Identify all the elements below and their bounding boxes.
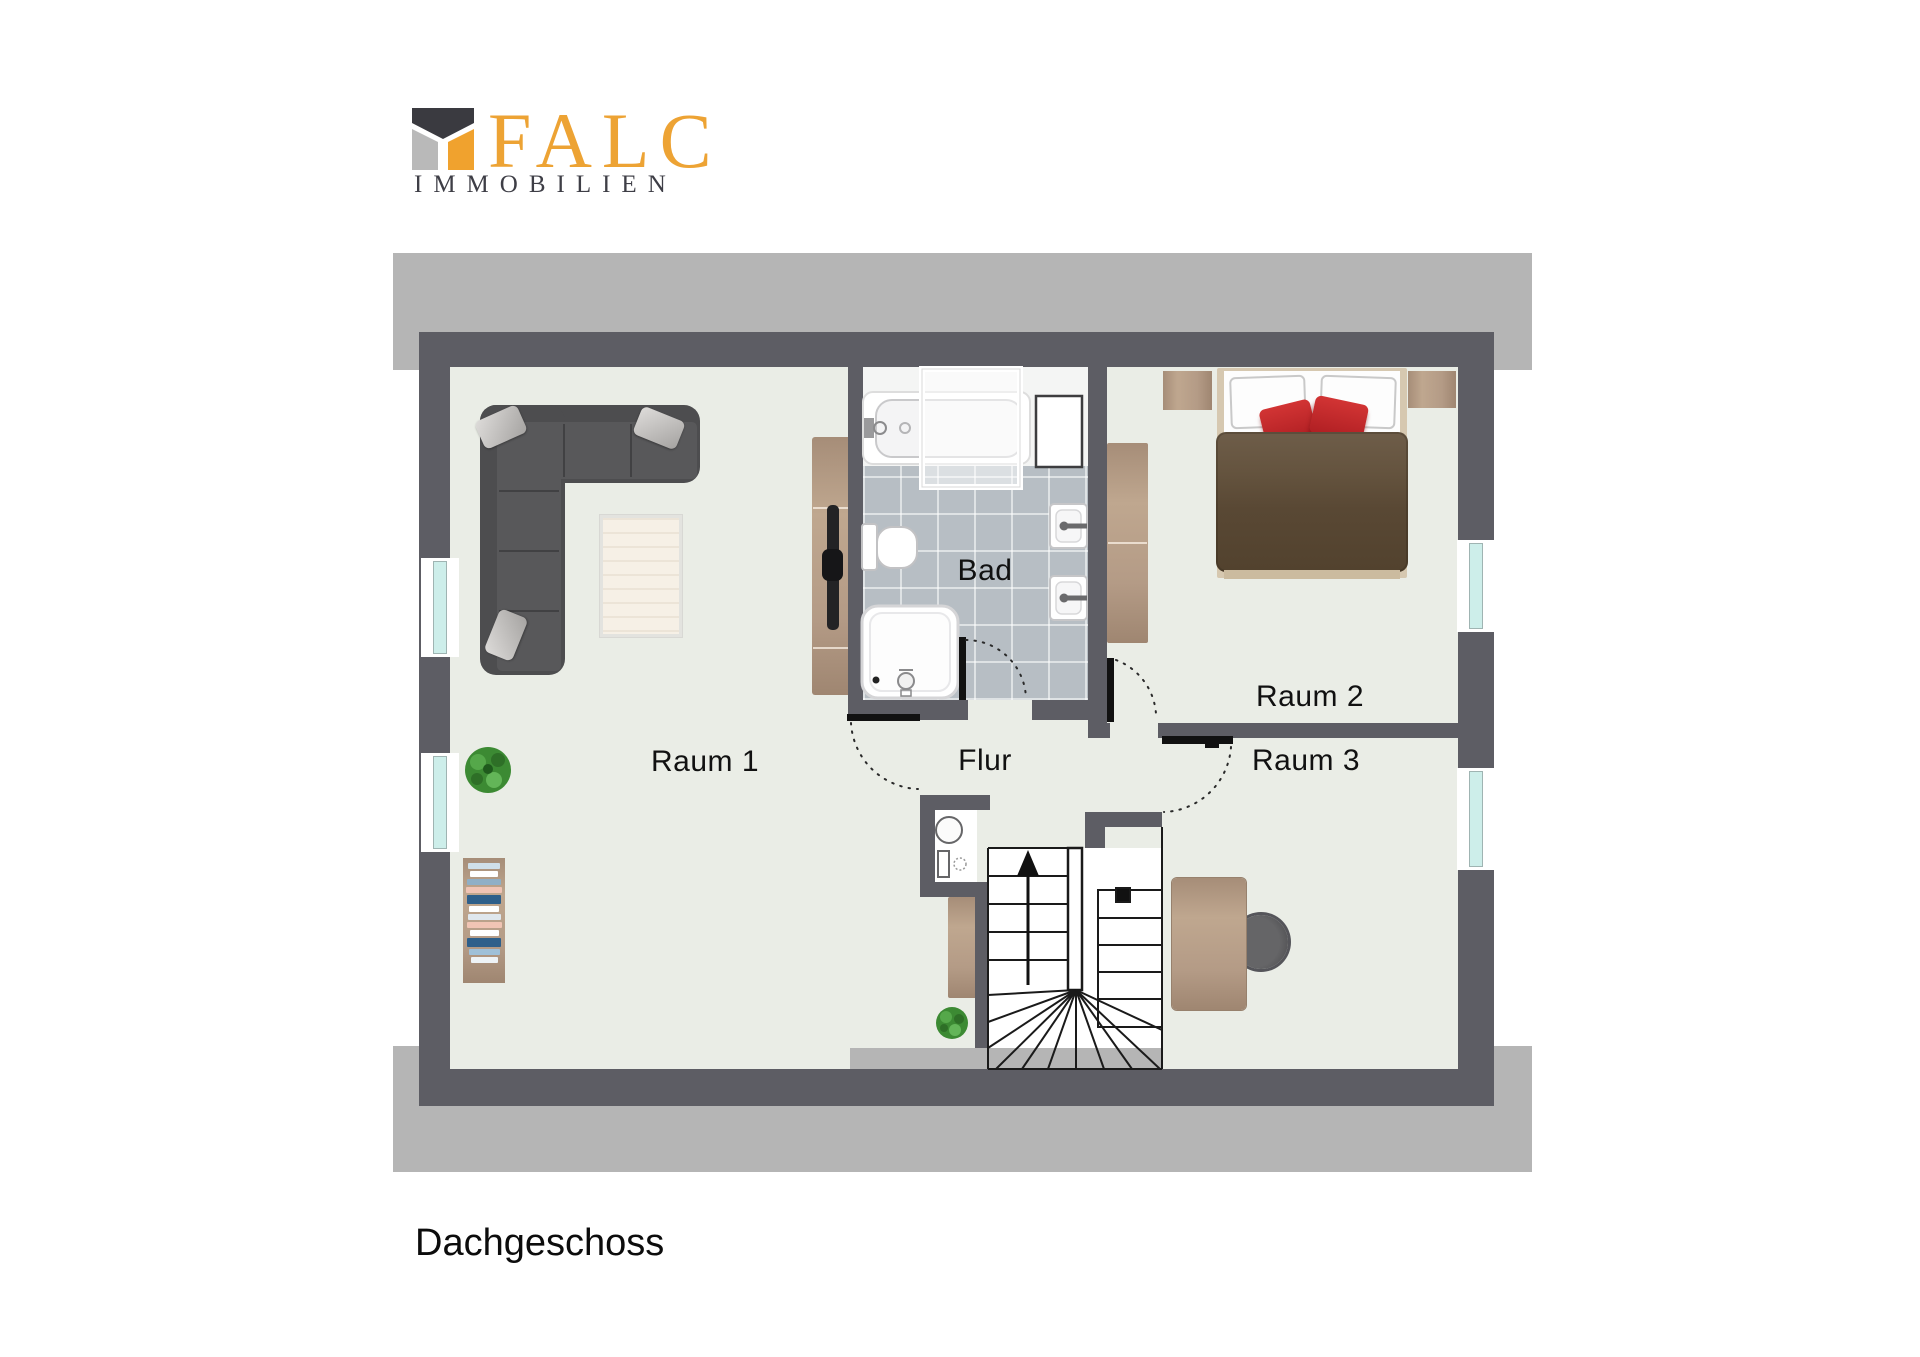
door-room1	[847, 714, 920, 789]
room-label-raum1: Raum 1	[651, 745, 759, 779]
plant-icon	[465, 747, 511, 793]
utility-appliance-icon	[936, 817, 966, 877]
door-room2	[1107, 658, 1156, 722]
floor-caption: Dachgeschoss	[415, 1222, 664, 1265]
shower-icon	[862, 606, 958, 698]
plan-overlay	[0, 0, 1920, 1357]
room-label-bad: Bad	[958, 554, 1013, 588]
skylight-icon	[922, 369, 1020, 487]
room-label-raum3: Raum 3	[1252, 744, 1360, 778]
floorplan-page: { "brand": { "name": "FALC", "subtitle":…	[0, 0, 1920, 1357]
staircase	[988, 827, 1162, 1069]
room-label-flur: Flur	[958, 744, 1012, 778]
door-room3	[1162, 736, 1233, 812]
stair-direction-arrow	[1017, 850, 1039, 985]
bath-cabinet	[1036, 396, 1082, 467]
door-bath	[959, 637, 1026, 700]
sink-icon	[1050, 504, 1087, 548]
plant-icon	[936, 1007, 968, 1039]
toilet-icon	[862, 524, 917, 570]
stair-start-marker	[1116, 888, 1130, 902]
room-label-raum2: Raum 2	[1256, 680, 1364, 714]
sink-icon	[1050, 576, 1087, 620]
